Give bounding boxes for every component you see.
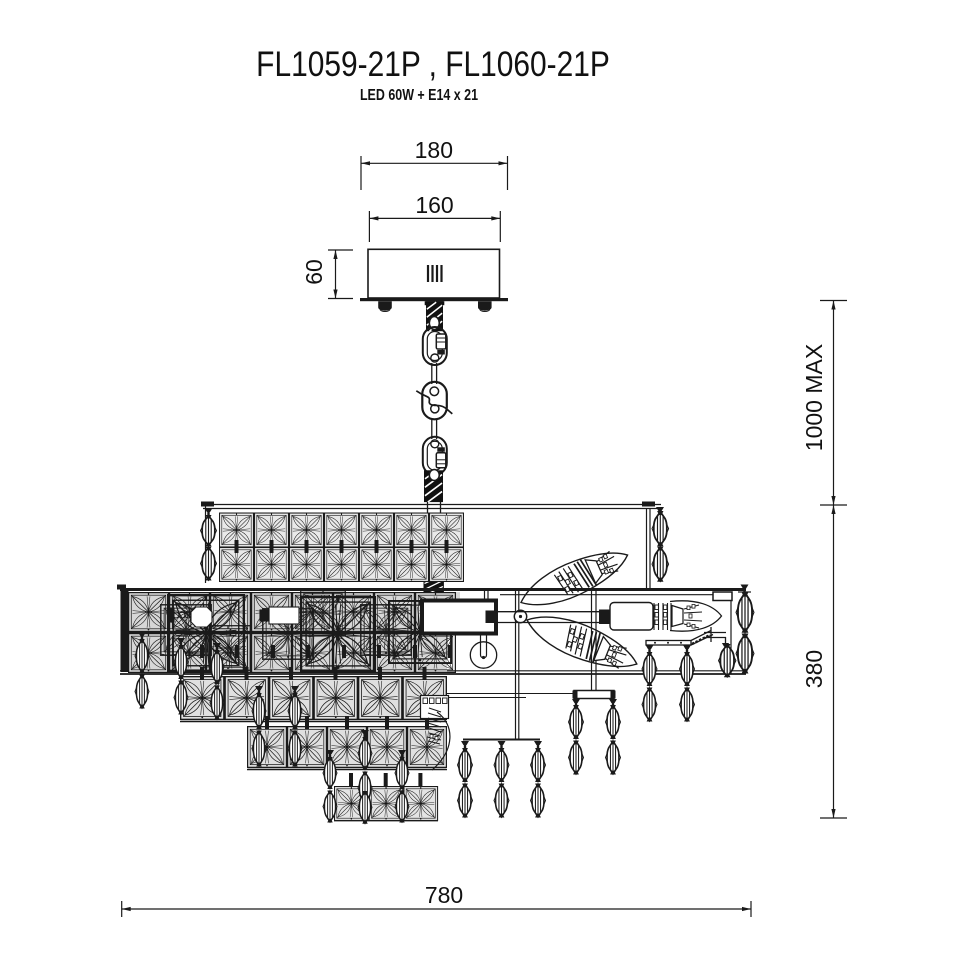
svg-text:380: 380 bbox=[801, 650, 827, 688]
svg-text:60: 60 bbox=[301, 259, 327, 285]
svg-text:180: 180 bbox=[415, 137, 453, 163]
svg-text:160: 160 bbox=[415, 192, 453, 218]
svg-text:1000 MAX: 1000 MAX bbox=[801, 344, 827, 451]
svg-text:LED 60W + E14 x 21: LED 60W + E14 x 21 bbox=[360, 87, 478, 105]
svg-text:FL1059-21P , FL1060-21P: FL1059-21P , FL1060-21P bbox=[256, 45, 610, 84]
svg-text:780: 780 bbox=[425, 882, 463, 908]
